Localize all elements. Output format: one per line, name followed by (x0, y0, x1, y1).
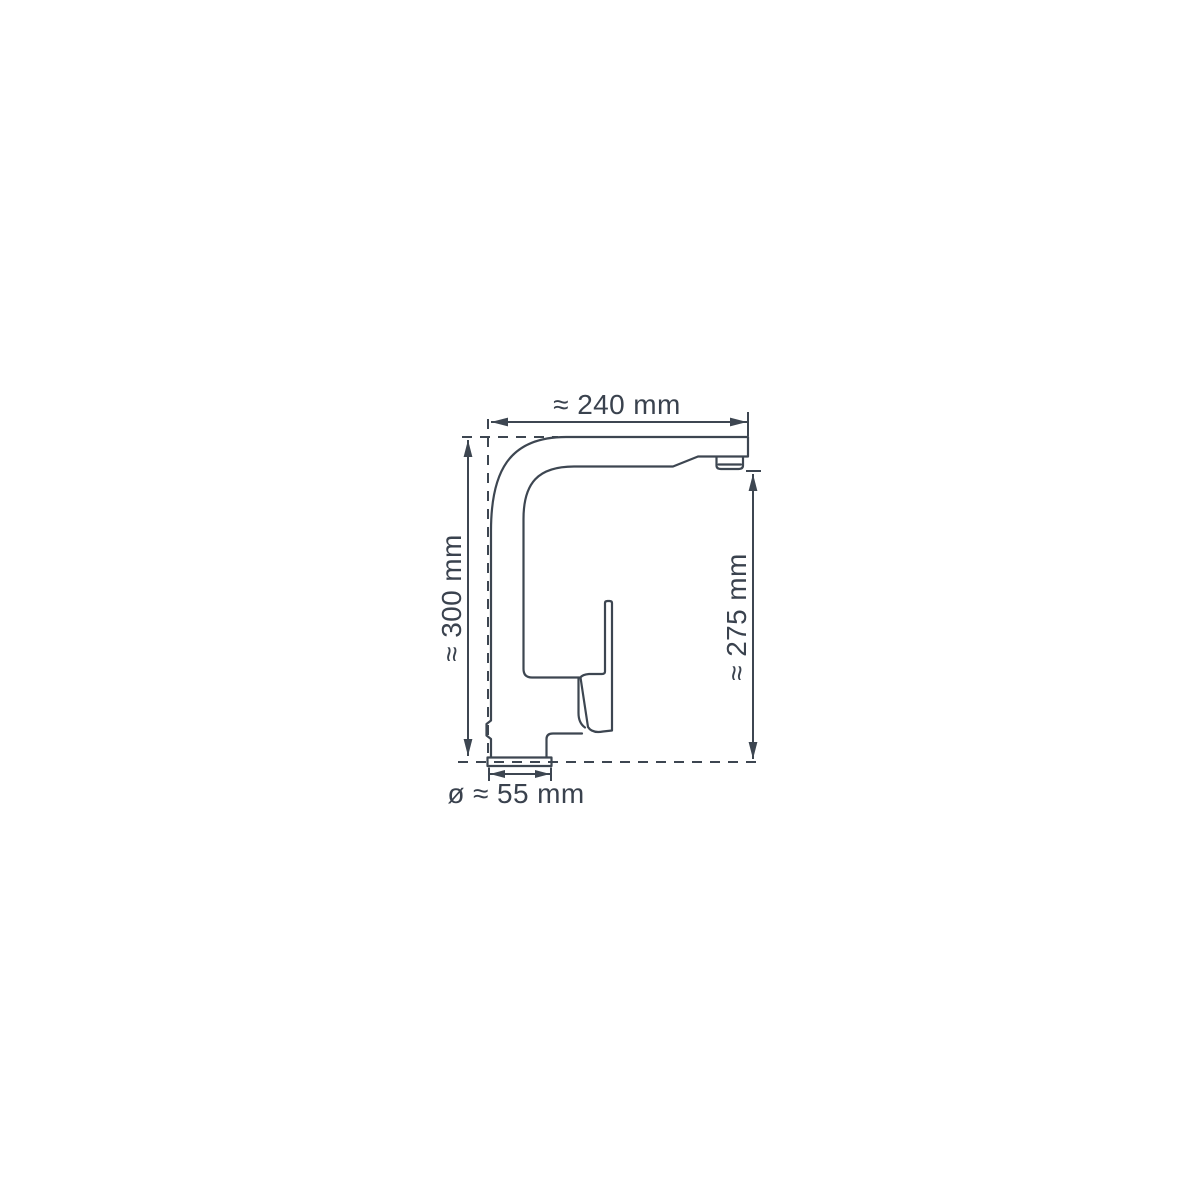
product-dimension-diagram: ≈ 240 mm ≈ 300 mm ≈ 275 mm ø ≈ 55 mm (0, 0, 1200, 1200)
label-spout-outlet-height: ≈ 275 mm (721, 553, 752, 681)
arrowhead-left-spout-reach (491, 418, 508, 427)
arrowhead-right-base-diameter (535, 770, 550, 778)
arrowhead-bottom-total-height (464, 739, 473, 756)
label-spout-reach-width: ≈ 240 mm (553, 389, 681, 420)
label-total-height: ≈ 300 mm (436, 534, 467, 662)
faucet-pedestal (547, 734, 583, 758)
faucet-dimension-drawing: ≈ 240 mm ≈ 300 mm ≈ 275 mm ø ≈ 55 mm (0, 0, 1200, 1200)
label-base-diameter: ø ≈ 55 mm (447, 778, 584, 809)
arrowhead-right-spout-reach (730, 418, 747, 427)
spout-aerator (717, 457, 744, 469)
faucet-body-outline (487, 437, 749, 757)
arrowhead-top-total-height (464, 440, 473, 457)
arrowhead-bottom-outlet-height (749, 742, 758, 759)
arrowhead-left-base-diameter (490, 770, 505, 778)
arrowhead-top-outlet-height (749, 474, 758, 491)
